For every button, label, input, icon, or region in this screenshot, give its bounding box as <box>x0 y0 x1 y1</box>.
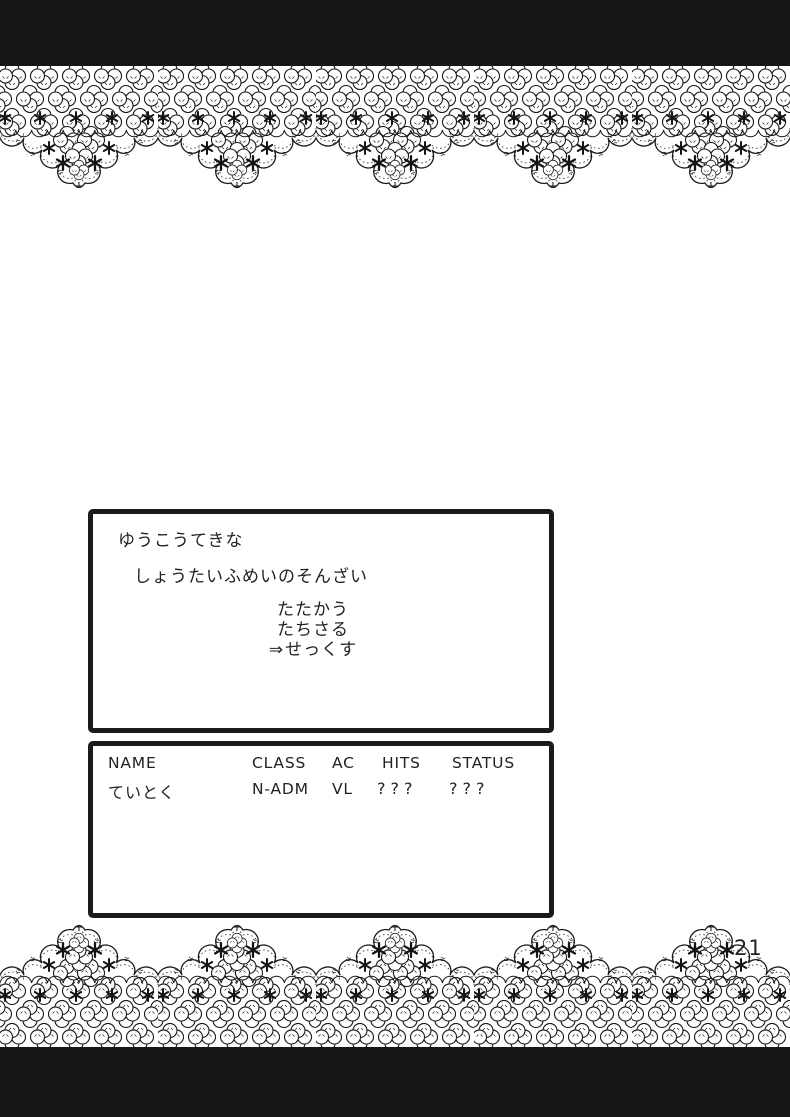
top-scan-bar <box>0 0 790 66</box>
lace-border-bottom <box>0 923 790 1047</box>
bottom-scan-bar <box>0 1047 790 1117</box>
column-header-name: NAME <box>108 754 157 772</box>
row-ac-value: VL <box>332 780 353 798</box>
column-header-ac: AC <box>332 754 355 772</box>
status-window: NAME CLASS AC HITS STATUS ていとく N-ADM VL … <box>88 741 554 918</box>
menu-option-selected: ⇒せっくす <box>223 640 403 660</box>
lace-border-top <box>0 66 790 190</box>
row-name-value: ていとく <box>108 779 176 803</box>
menu-option-leave: たちさる <box>223 620 403 640</box>
column-header-hits: HITS <box>382 754 421 772</box>
menu-option-label: せっくす <box>285 640 357 660</box>
lace-pattern-fill <box>0 923 790 1047</box>
menu-option-fight: たたかう <box>223 600 403 620</box>
row-status-value: ??? <box>449 779 489 798</box>
scanned-page: ゆうこうてきな しょうたいふめいのそんざい たたかう たちさる ⇒せっくす NA… <box>0 0 790 1117</box>
lace-pattern-fill <box>0 66 790 190</box>
selection-cursor-arrow: ⇒ <box>269 640 284 660</box>
battle-menu: たたかう たちさる ⇒せっくす <box>223 600 403 660</box>
battle-message-box: ゆうこうてきな しょうたいふめいのそんざい たたかう たちさる ⇒せっくす <box>88 509 554 733</box>
message-line-1: ゆうこうてきな <box>118 526 244 551</box>
row-class-value: N-ADM <box>252 780 309 798</box>
column-header-class: CLASS <box>252 754 306 772</box>
column-header-status: STATUS <box>452 754 515 772</box>
message-line-2: しょうたいふめいのそんざい <box>134 562 368 587</box>
row-hits-value: ??? <box>377 779 417 798</box>
